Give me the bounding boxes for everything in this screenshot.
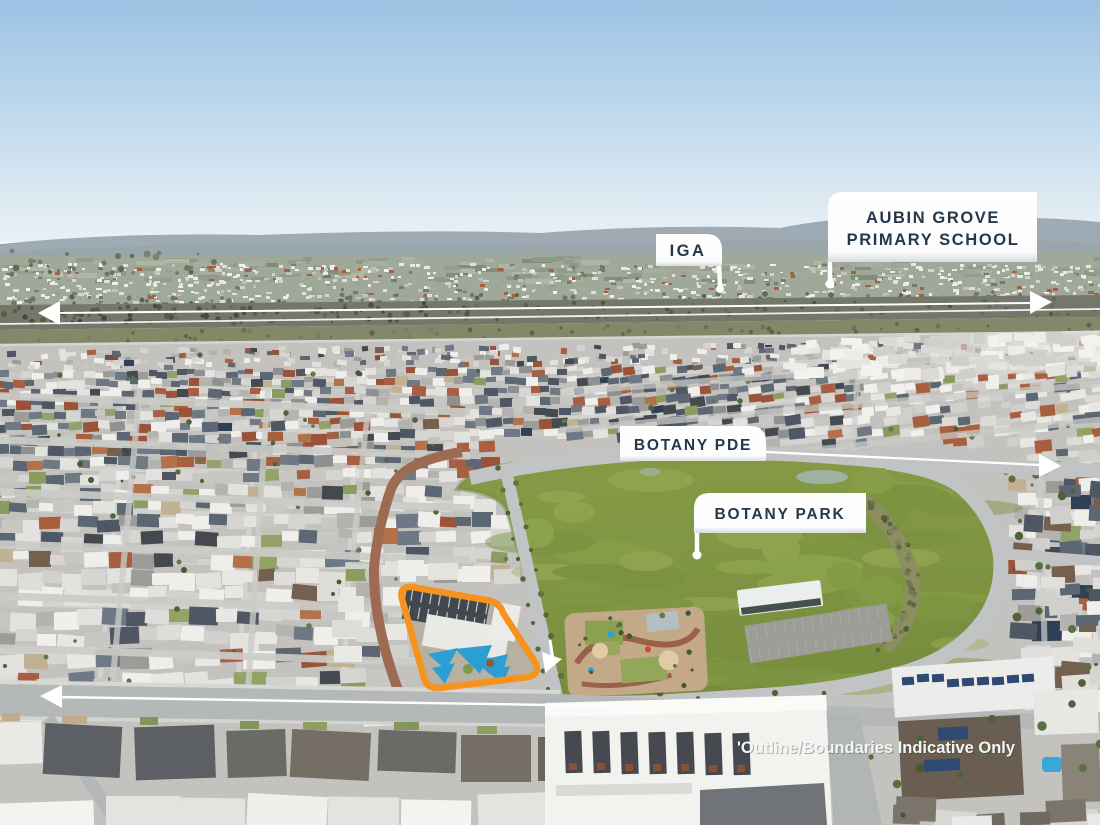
svg-text:AUBIN GROVE: AUBIN GROVE bbox=[866, 209, 1000, 227]
svg-text:'Outline/Boundaries Indicative: 'Outline/Boundaries Indicative Only bbox=[737, 739, 1016, 757]
svg-text:PRIMARY SCHOOL: PRIMARY SCHOOL bbox=[847, 231, 1020, 249]
svg-text:BOTANY PDE: BOTANY PDE bbox=[634, 437, 752, 454]
svg-text:IGA: IGA bbox=[670, 242, 707, 260]
svg-text:BOTANY PARK: BOTANY PARK bbox=[715, 506, 846, 523]
